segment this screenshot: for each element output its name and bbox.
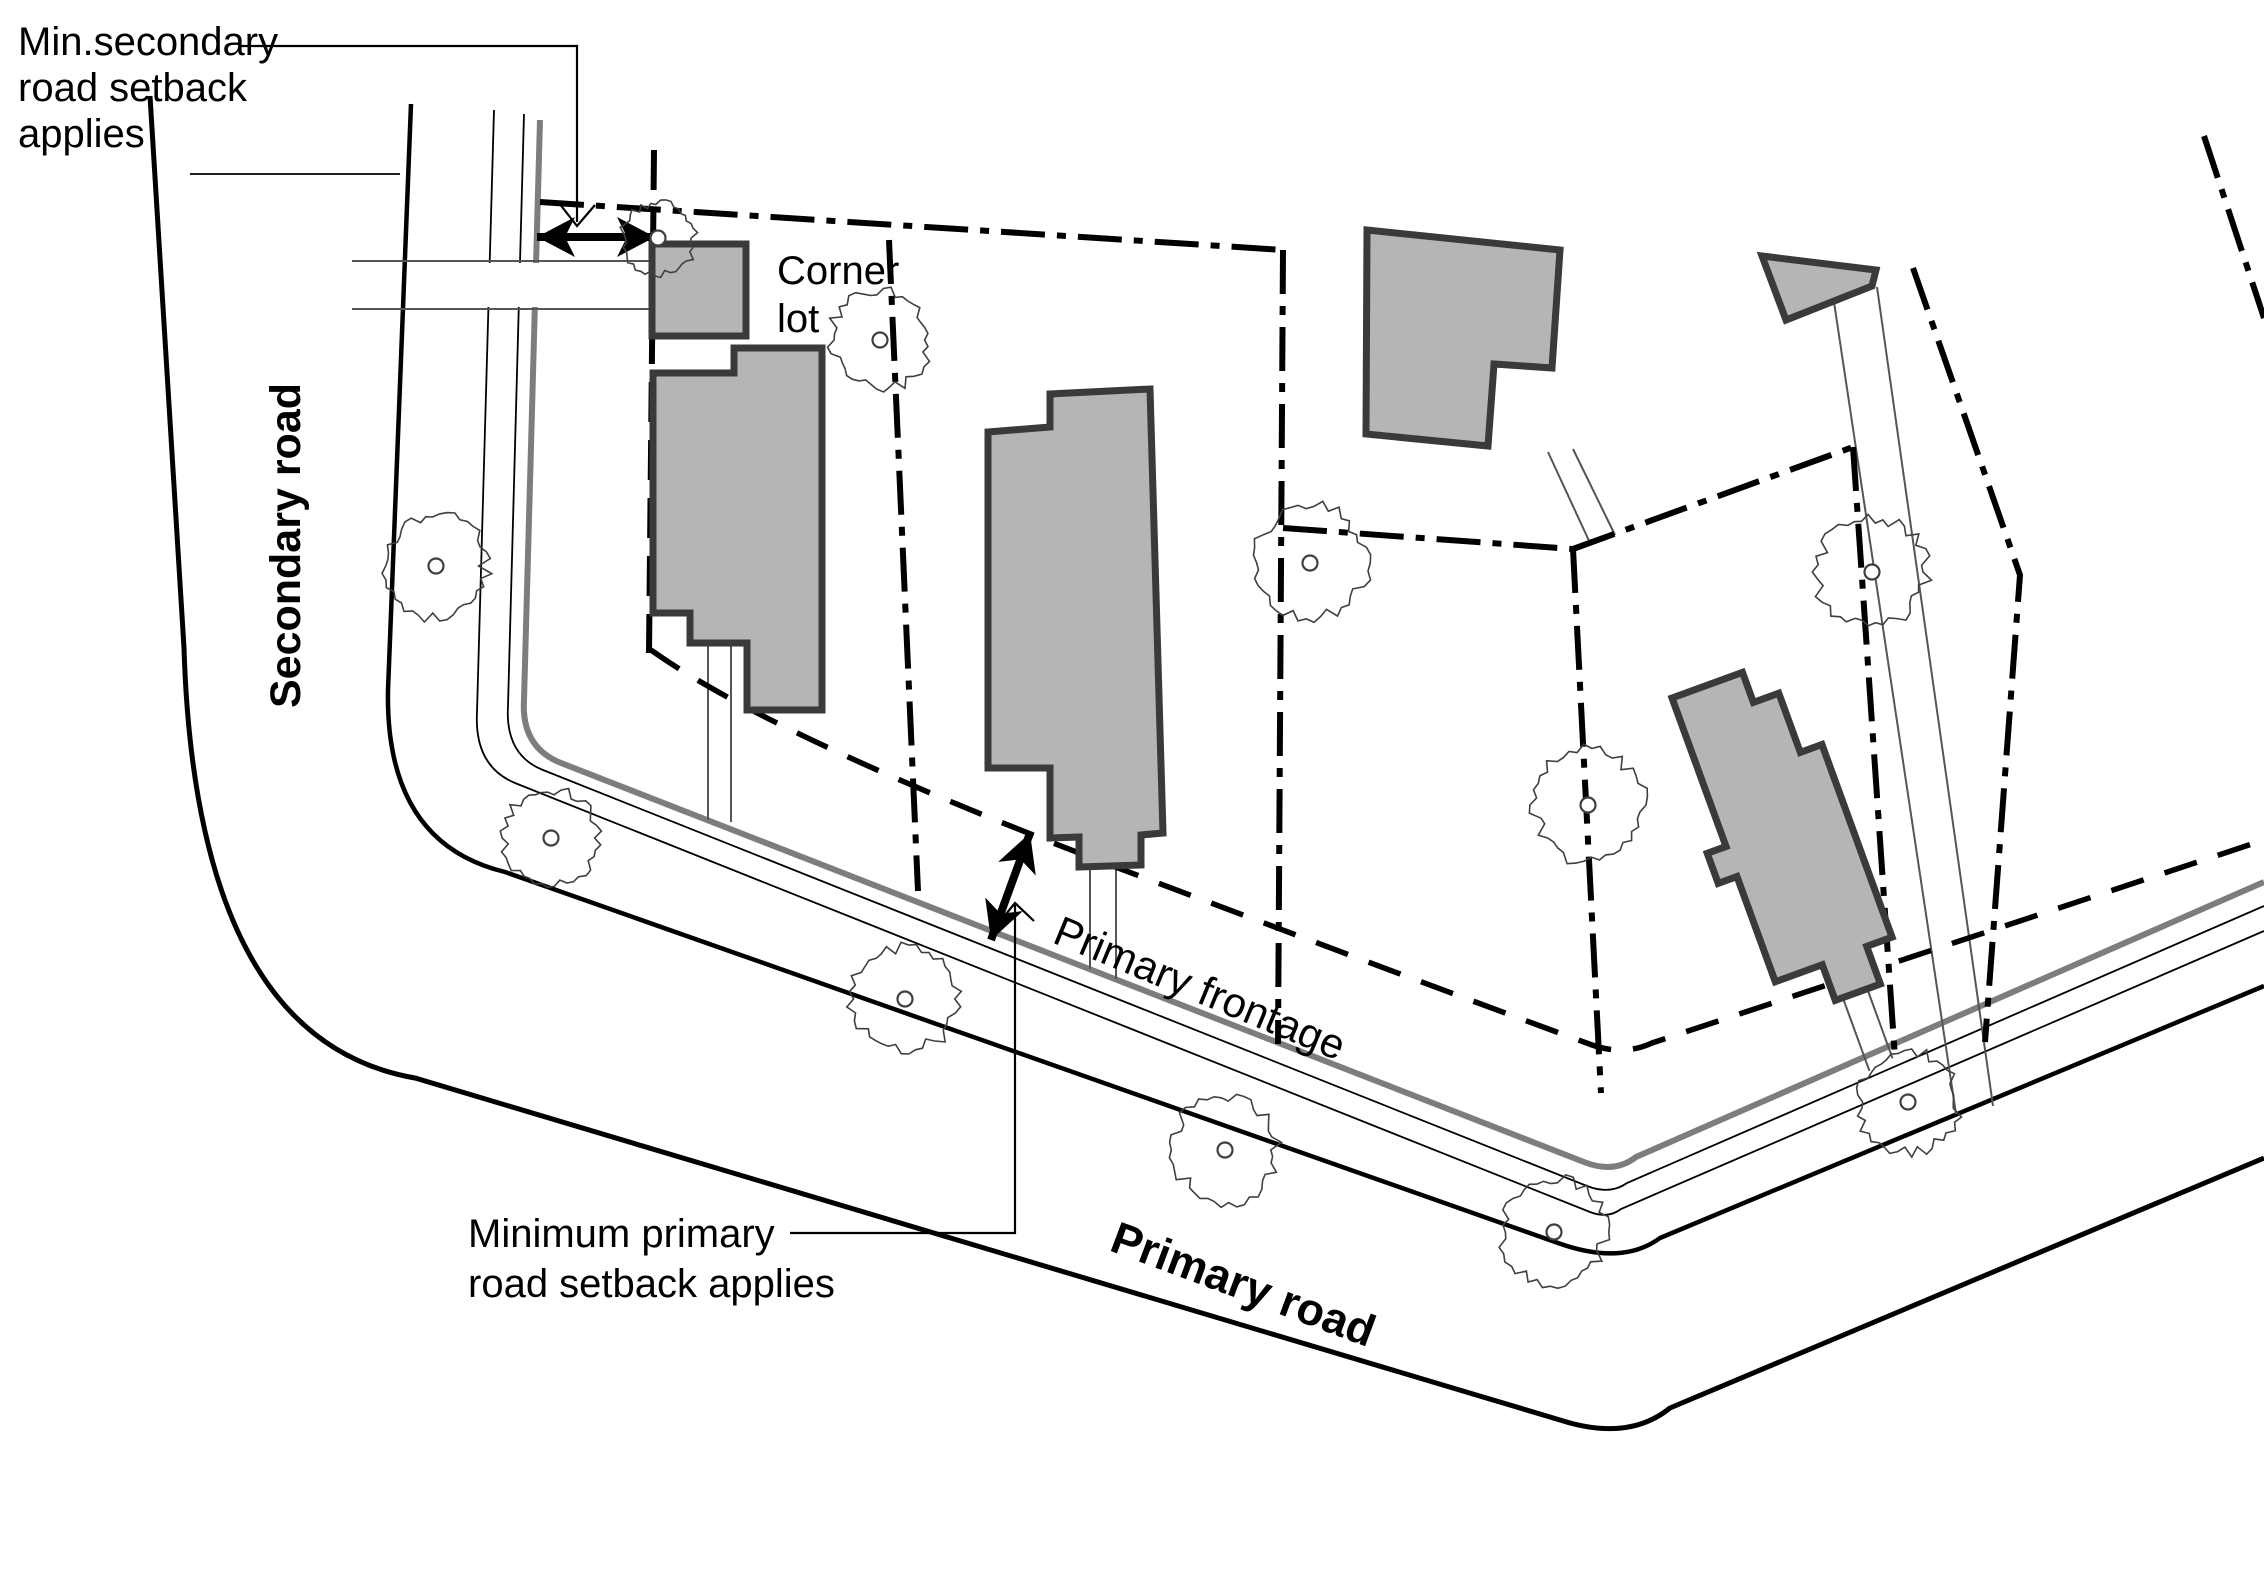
building-corner-lot-house — [653, 348, 822, 710]
tree-trunk-dot — [429, 559, 444, 574]
tree-trunk-dot — [1303, 556, 1318, 571]
min-primary-setback-note: Minimum primary — [468, 1212, 775, 1256]
lane-line — [1877, 287, 1993, 1106]
secondary-road-label: Secondary road — [262, 383, 310, 708]
primary-setback-dimension-arrow — [991, 833, 1030, 940]
min-secondary-setback-note: Min.secondary — [18, 20, 278, 64]
annotation-leaders — [240, 46, 1034, 1233]
tree-trunk-dot — [898, 992, 913, 1007]
tree-trunk-dot — [873, 333, 888, 348]
buildings — [652, 230, 1932, 1098]
site-plan-stage: Min.secondary road setback applies Corne… — [0, 0, 2264, 1570]
min-primary-leader-line — [790, 905, 1015, 1233]
building-house-2 — [988, 389, 1163, 867]
tree-trunk-dot — [1581, 798, 1596, 813]
primary-frontage-label: Primary frontage — [1048, 907, 1353, 1069]
building-house-4 — [1653, 655, 1906, 1024]
building-wedge — [1762, 256, 1876, 320]
lot-boundary — [1278, 250, 1283, 1044]
corner-lot-label: lot — [777, 297, 819, 341]
path-line — [1548, 452, 1590, 543]
garage-crossing-surface — [415, 263, 652, 307]
tree-trunk-dot — [1218, 1143, 1233, 1158]
tree-trunk-dot — [1865, 565, 1880, 580]
building-house-3 — [1366, 230, 1560, 446]
labels: Min.secondary road setback applies Corne… — [18, 20, 1382, 1357]
tree-trunk-dot — [651, 231, 666, 246]
min-primary-setback-note: road setback applies — [468, 1262, 835, 1306]
lot-boundary — [1573, 549, 1601, 1093]
min-secondary-setback-note: road setback — [18, 66, 248, 110]
tree-trunk-dot — [1901, 1095, 1916, 1110]
min-secondary-setback-note: applies — [18, 112, 145, 156]
building-corner-lot-garage — [652, 244, 746, 336]
tree-trunk-dot — [1547, 1225, 1562, 1240]
site-plan-diagram: Min.secondary road setback applies Corne… — [0, 0, 2264, 1570]
corner-lot-label: Corner — [777, 249, 899, 293]
primary-road-label: Primary road — [1104, 1212, 1382, 1357]
lot-boundary — [889, 240, 918, 891]
tree-trunk-dot — [544, 831, 559, 846]
lot-boundary-edge — [2204, 136, 2264, 318]
rear-boundary-mid — [1283, 528, 1573, 549]
